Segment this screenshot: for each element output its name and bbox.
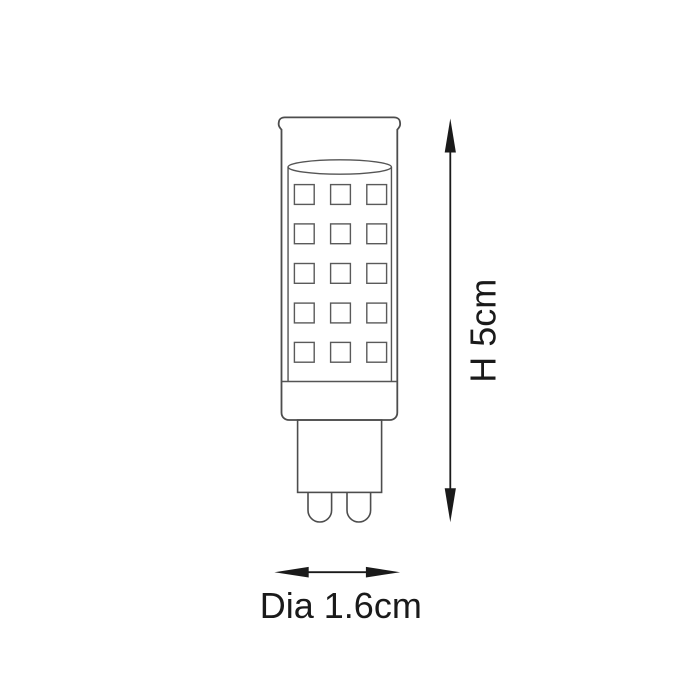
svg-text:H 5cm: H 5cm — [462, 279, 503, 383]
svg-text:Dia 1.6cm: Dia 1.6cm — [260, 585, 422, 626]
